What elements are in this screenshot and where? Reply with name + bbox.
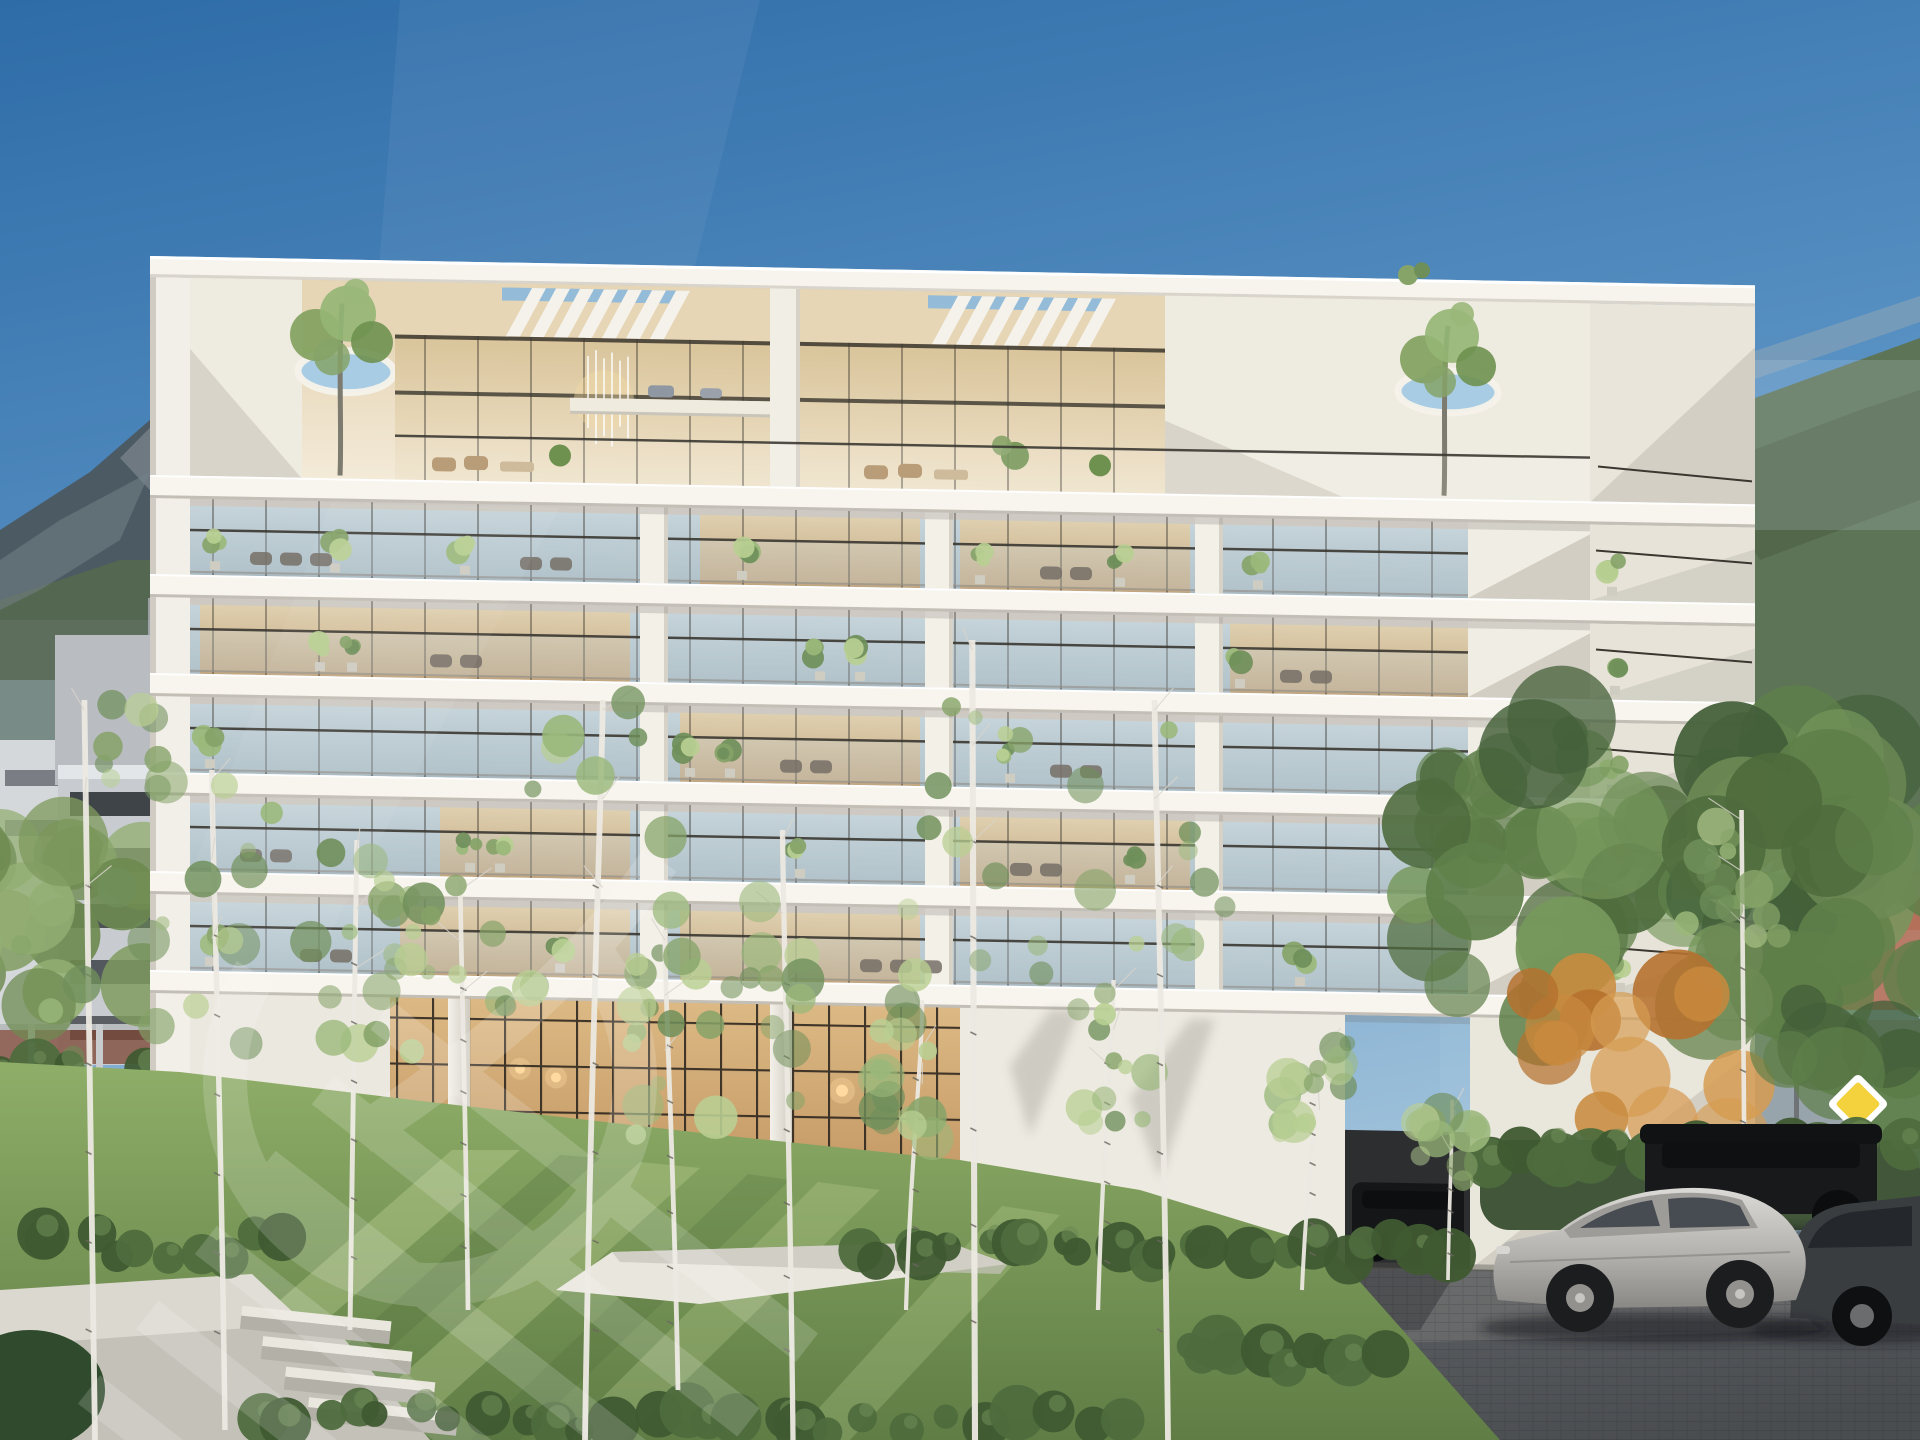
patio-furniture	[780, 760, 802, 773]
patio-furniture	[1010, 863, 1032, 876]
facade-pier	[640, 507, 668, 584]
patio-furniture	[810, 760, 832, 773]
patio-furniture	[1310, 670, 1332, 683]
patio-furniture	[1280, 670, 1302, 683]
facade-pier	[1195, 517, 1223, 594]
patio-furniture	[280, 552, 302, 565]
patio-furniture	[250, 552, 272, 565]
architectural-rendering	[0, 0, 1920, 1440]
lounge-chair	[648, 385, 674, 397]
facade-pier	[1195, 616, 1223, 693]
patio-furniture	[860, 959, 882, 972]
patio-furniture	[1040, 566, 1062, 579]
patio-furniture	[330, 949, 352, 962]
facade-pier	[640, 606, 668, 683]
patio-furniture	[1050, 764, 1072, 777]
patio-furniture	[550, 557, 572, 570]
patio-furniture	[1070, 567, 1092, 580]
rendering-canvas	[0, 0, 1920, 1440]
headlight	[1496, 1246, 1510, 1254]
penthouse-level	[190, 276, 1755, 506]
facade-pier	[1195, 715, 1223, 792]
facade-pier	[925, 512, 953, 589]
patio-furniture	[1040, 863, 1062, 876]
facade-pier	[925, 611, 953, 688]
